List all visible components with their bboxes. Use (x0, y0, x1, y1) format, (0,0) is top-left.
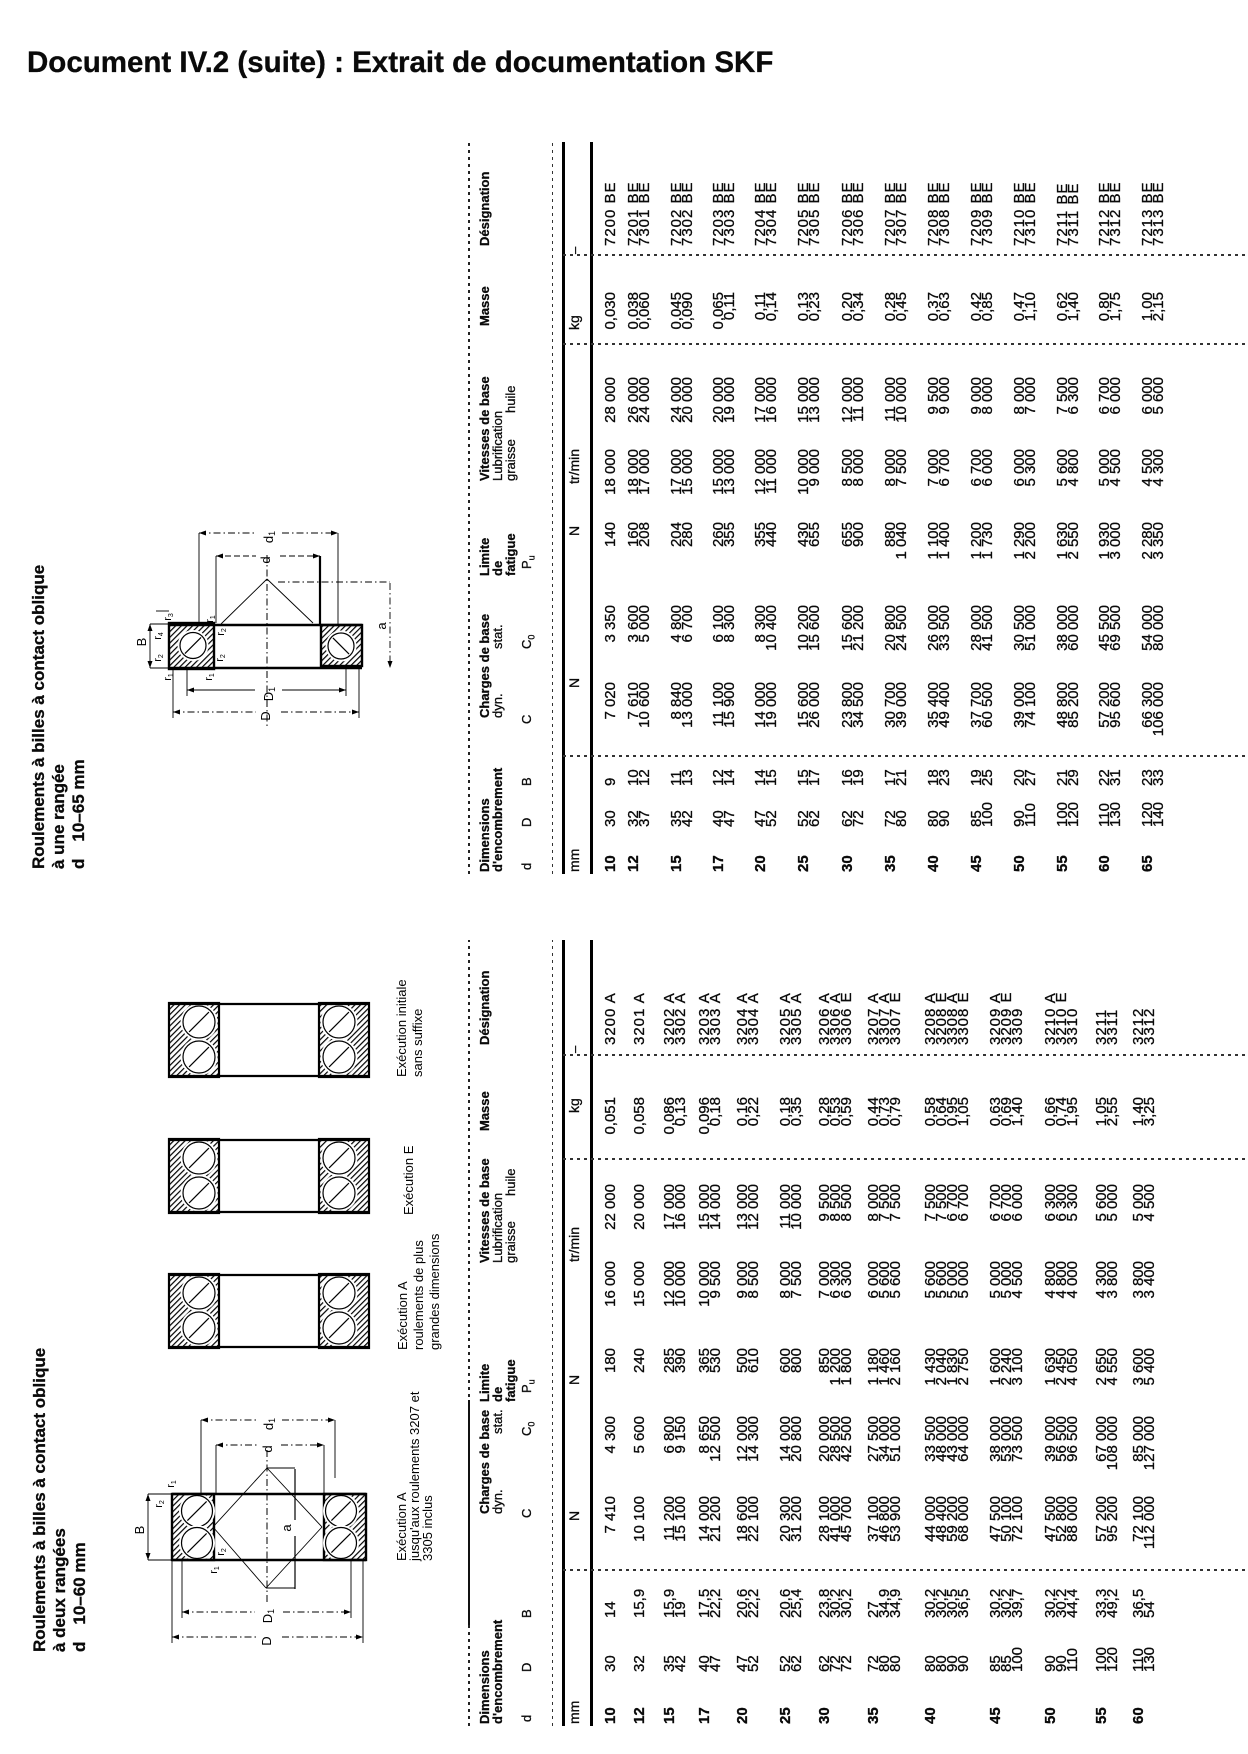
svg-text:Exécution A: Exécution A (395, 1281, 410, 1350)
svg-text:d1: d1 (261, 1418, 277, 1430)
svg-text:r4: r4 (152, 632, 165, 640)
svg-text:B: B (134, 638, 149, 647)
svg-text:r1: r1 (203, 673, 216, 681)
svg-text:Exécution initiale: Exécution initiale (394, 979, 409, 1077)
svg-text:r2: r2 (215, 1548, 228, 1556)
svg-text:3305 inclus: 3305 inclus (420, 1495, 435, 1561)
svg-text:r2: r2 (214, 654, 227, 662)
svg-text:grandes dimensions: grandes dimensions (427, 1233, 442, 1350)
svg-text:d: d (258, 556, 273, 563)
svg-text:r2: r2 (152, 654, 165, 662)
svg-text:r2: r2 (215, 628, 228, 636)
svg-text:r3: r3 (162, 613, 175, 621)
svg-text:D: D (259, 1636, 274, 1645)
svg-text:r1: r1 (162, 673, 175, 681)
svg-text:r2: r2 (153, 1500, 166, 1508)
svg-text:r1: r1 (208, 1566, 221, 1574)
svg-text:d1: d1 (261, 531, 277, 543)
svg-text:r1: r1 (204, 615, 217, 623)
svg-text:B: B (132, 1526, 147, 1535)
svg-text:a: a (279, 1524, 294, 1532)
svg-text:D1: D1 (261, 687, 277, 701)
svg-text:r1: r1 (165, 1480, 178, 1488)
svg-text:roulements de plus: roulements de plus (411, 1240, 426, 1350)
svg-text:d: d (260, 1445, 275, 1452)
svg-text:D1: D1 (260, 1609, 276, 1623)
svg-text:sans suffixe: sans suffixe (410, 1009, 425, 1077)
svg-text:D: D (258, 711, 273, 720)
svg-text:Exécution E: Exécution E (401, 1145, 416, 1215)
svg-text:a: a (374, 622, 389, 630)
